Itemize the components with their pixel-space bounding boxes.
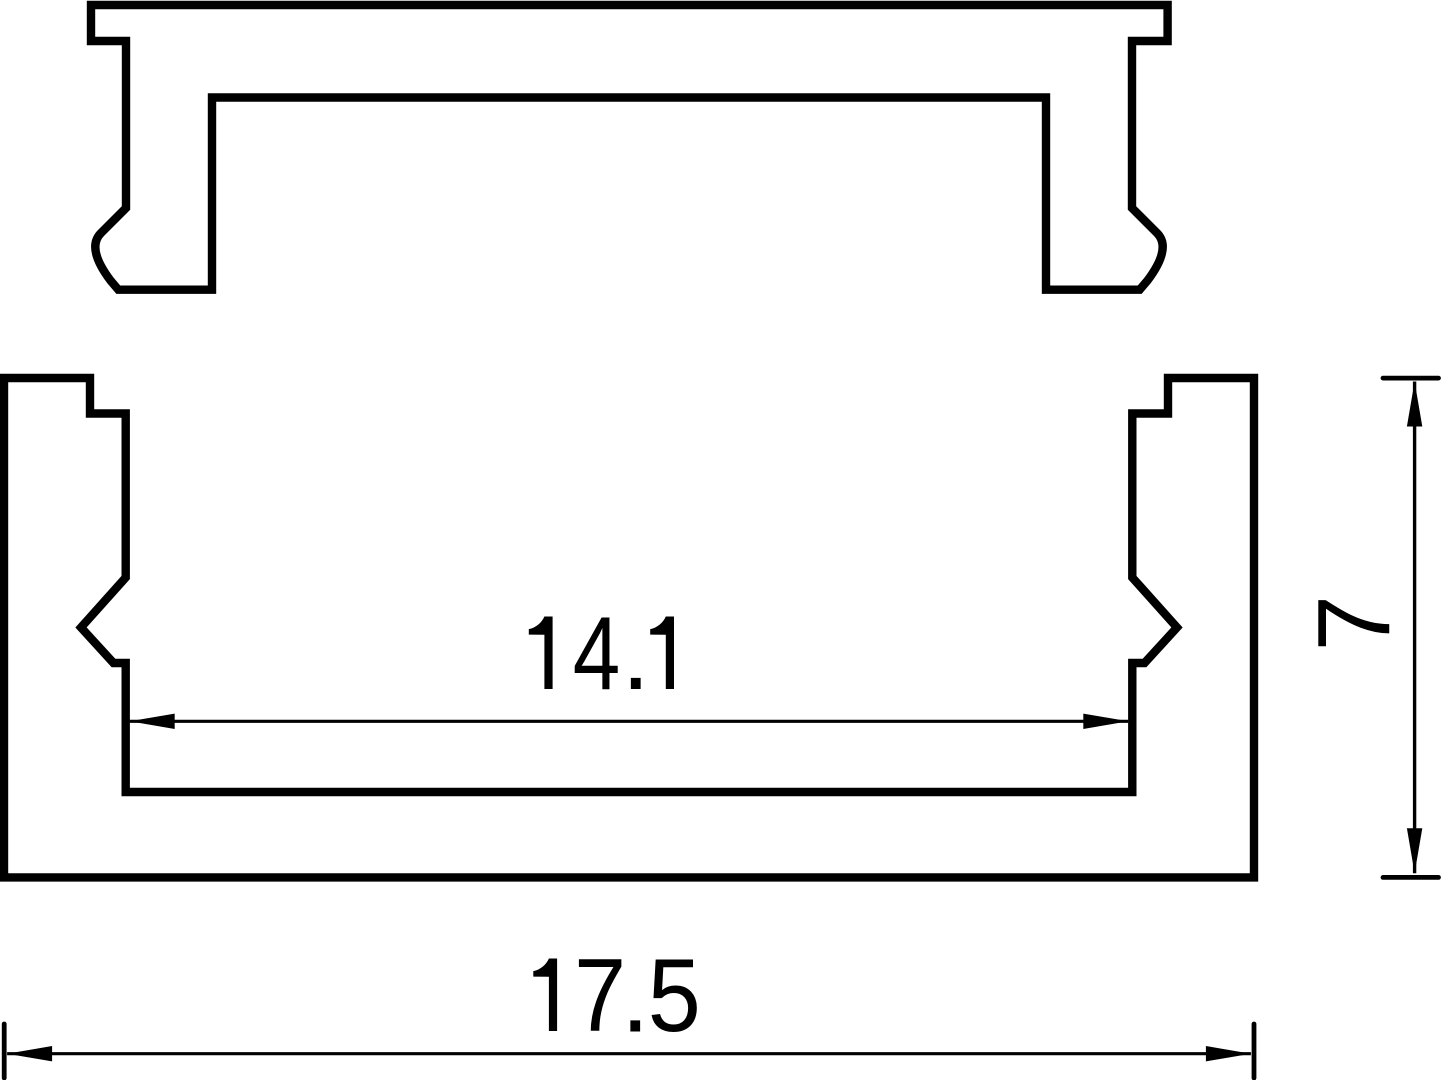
svg-text:.: . <box>622 594 651 711</box>
svg-text:7: 7 <box>574 936 626 1053</box>
svg-text:.: . <box>621 937 650 1054</box>
svg-text:5: 5 <box>648 938 701 1054</box>
svg-text:7: 7 <box>1297 595 1412 651</box>
svg-text:4: 4 <box>573 596 620 712</box>
